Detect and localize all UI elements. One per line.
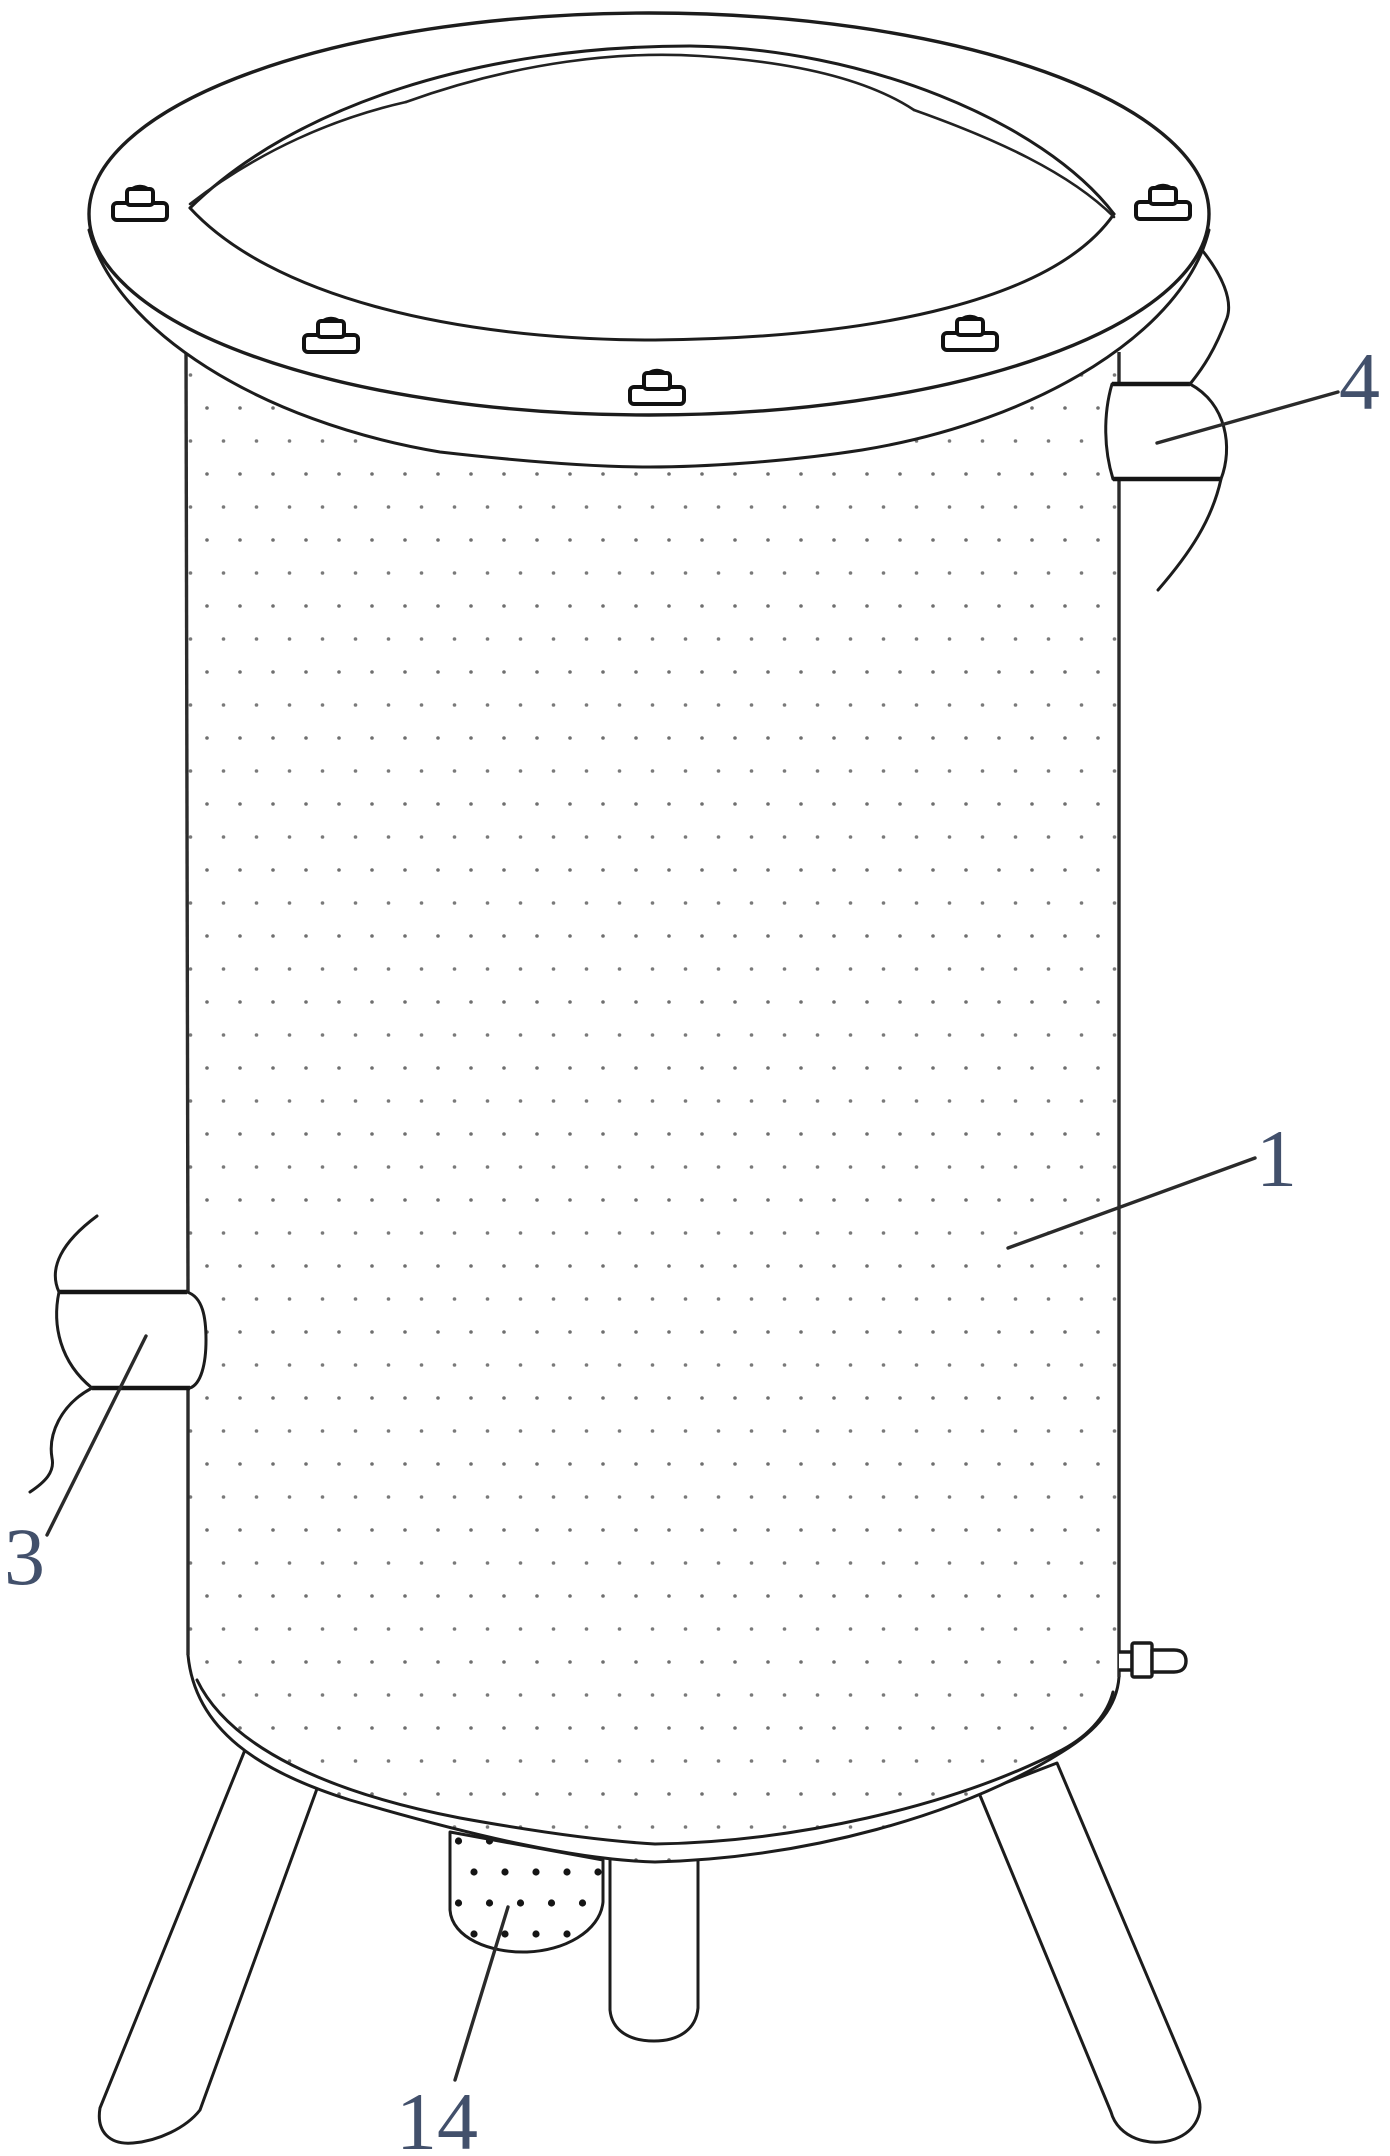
tank-body (186, 345, 1119, 1862)
label-1: 1 (1256, 1113, 1297, 1204)
left-wall-upper (186, 345, 188, 1292)
drain-fitting-pipe (1152, 1650, 1186, 1672)
label-4: 4 (1339, 336, 1380, 427)
patent-figure-page: 1 3 4 14 (0, 0, 1390, 2156)
drain-fitting-stub (1119, 1652, 1132, 1670)
label-14: 14 (396, 2076, 478, 2156)
figure-canvas: 1 3 4 14 (0, 0, 1390, 2156)
drain-fitting-collar (1132, 1643, 1152, 1677)
label-3: 3 (4, 1511, 45, 1602)
flange-face-fill (89, 13, 1209, 415)
